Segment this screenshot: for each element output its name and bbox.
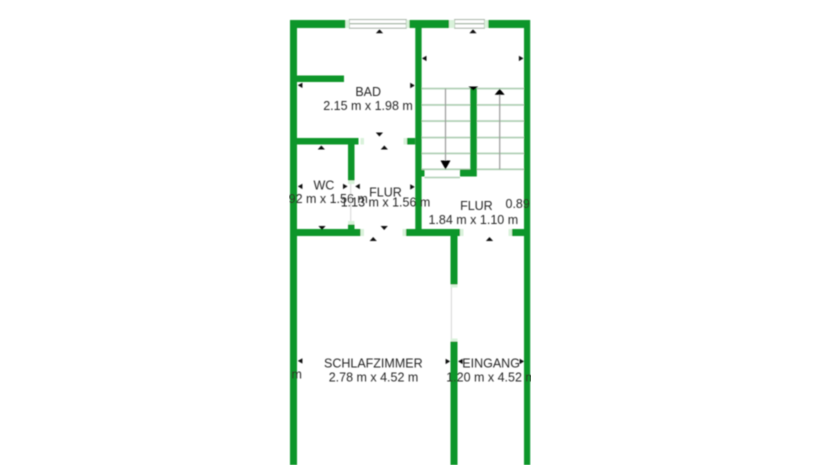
svg-text:0.89 m: 0.89 m (506, 197, 544, 211)
svg-text:1.20 m x 4.52 m: 1.20 m x 4.52 m (446, 371, 536, 385)
svg-text:2.15 m x 1.98 m: 2.15 m x 1.98 m (323, 99, 413, 113)
svg-text:FLUR: FLUR (460, 199, 493, 213)
svg-text:1.13 m x 1.56 m: 1.13 m x 1.56 m (341, 196, 431, 210)
svg-text:EINGANG: EINGANG (462, 356, 520, 370)
svg-text:SCHLAFZIMMER: SCHLAFZIMMER (324, 356, 423, 370)
svg-text:BAD: BAD (355, 85, 381, 99)
svg-text:m: m (292, 368, 302, 382)
svg-text:1.84 m x 1.10 m: 1.84 m x 1.10 m (428, 213, 518, 227)
svg-text:WC: WC (313, 178, 334, 192)
svg-text:2.78 m x 4.52 m: 2.78 m x 4.52 m (329, 371, 419, 385)
